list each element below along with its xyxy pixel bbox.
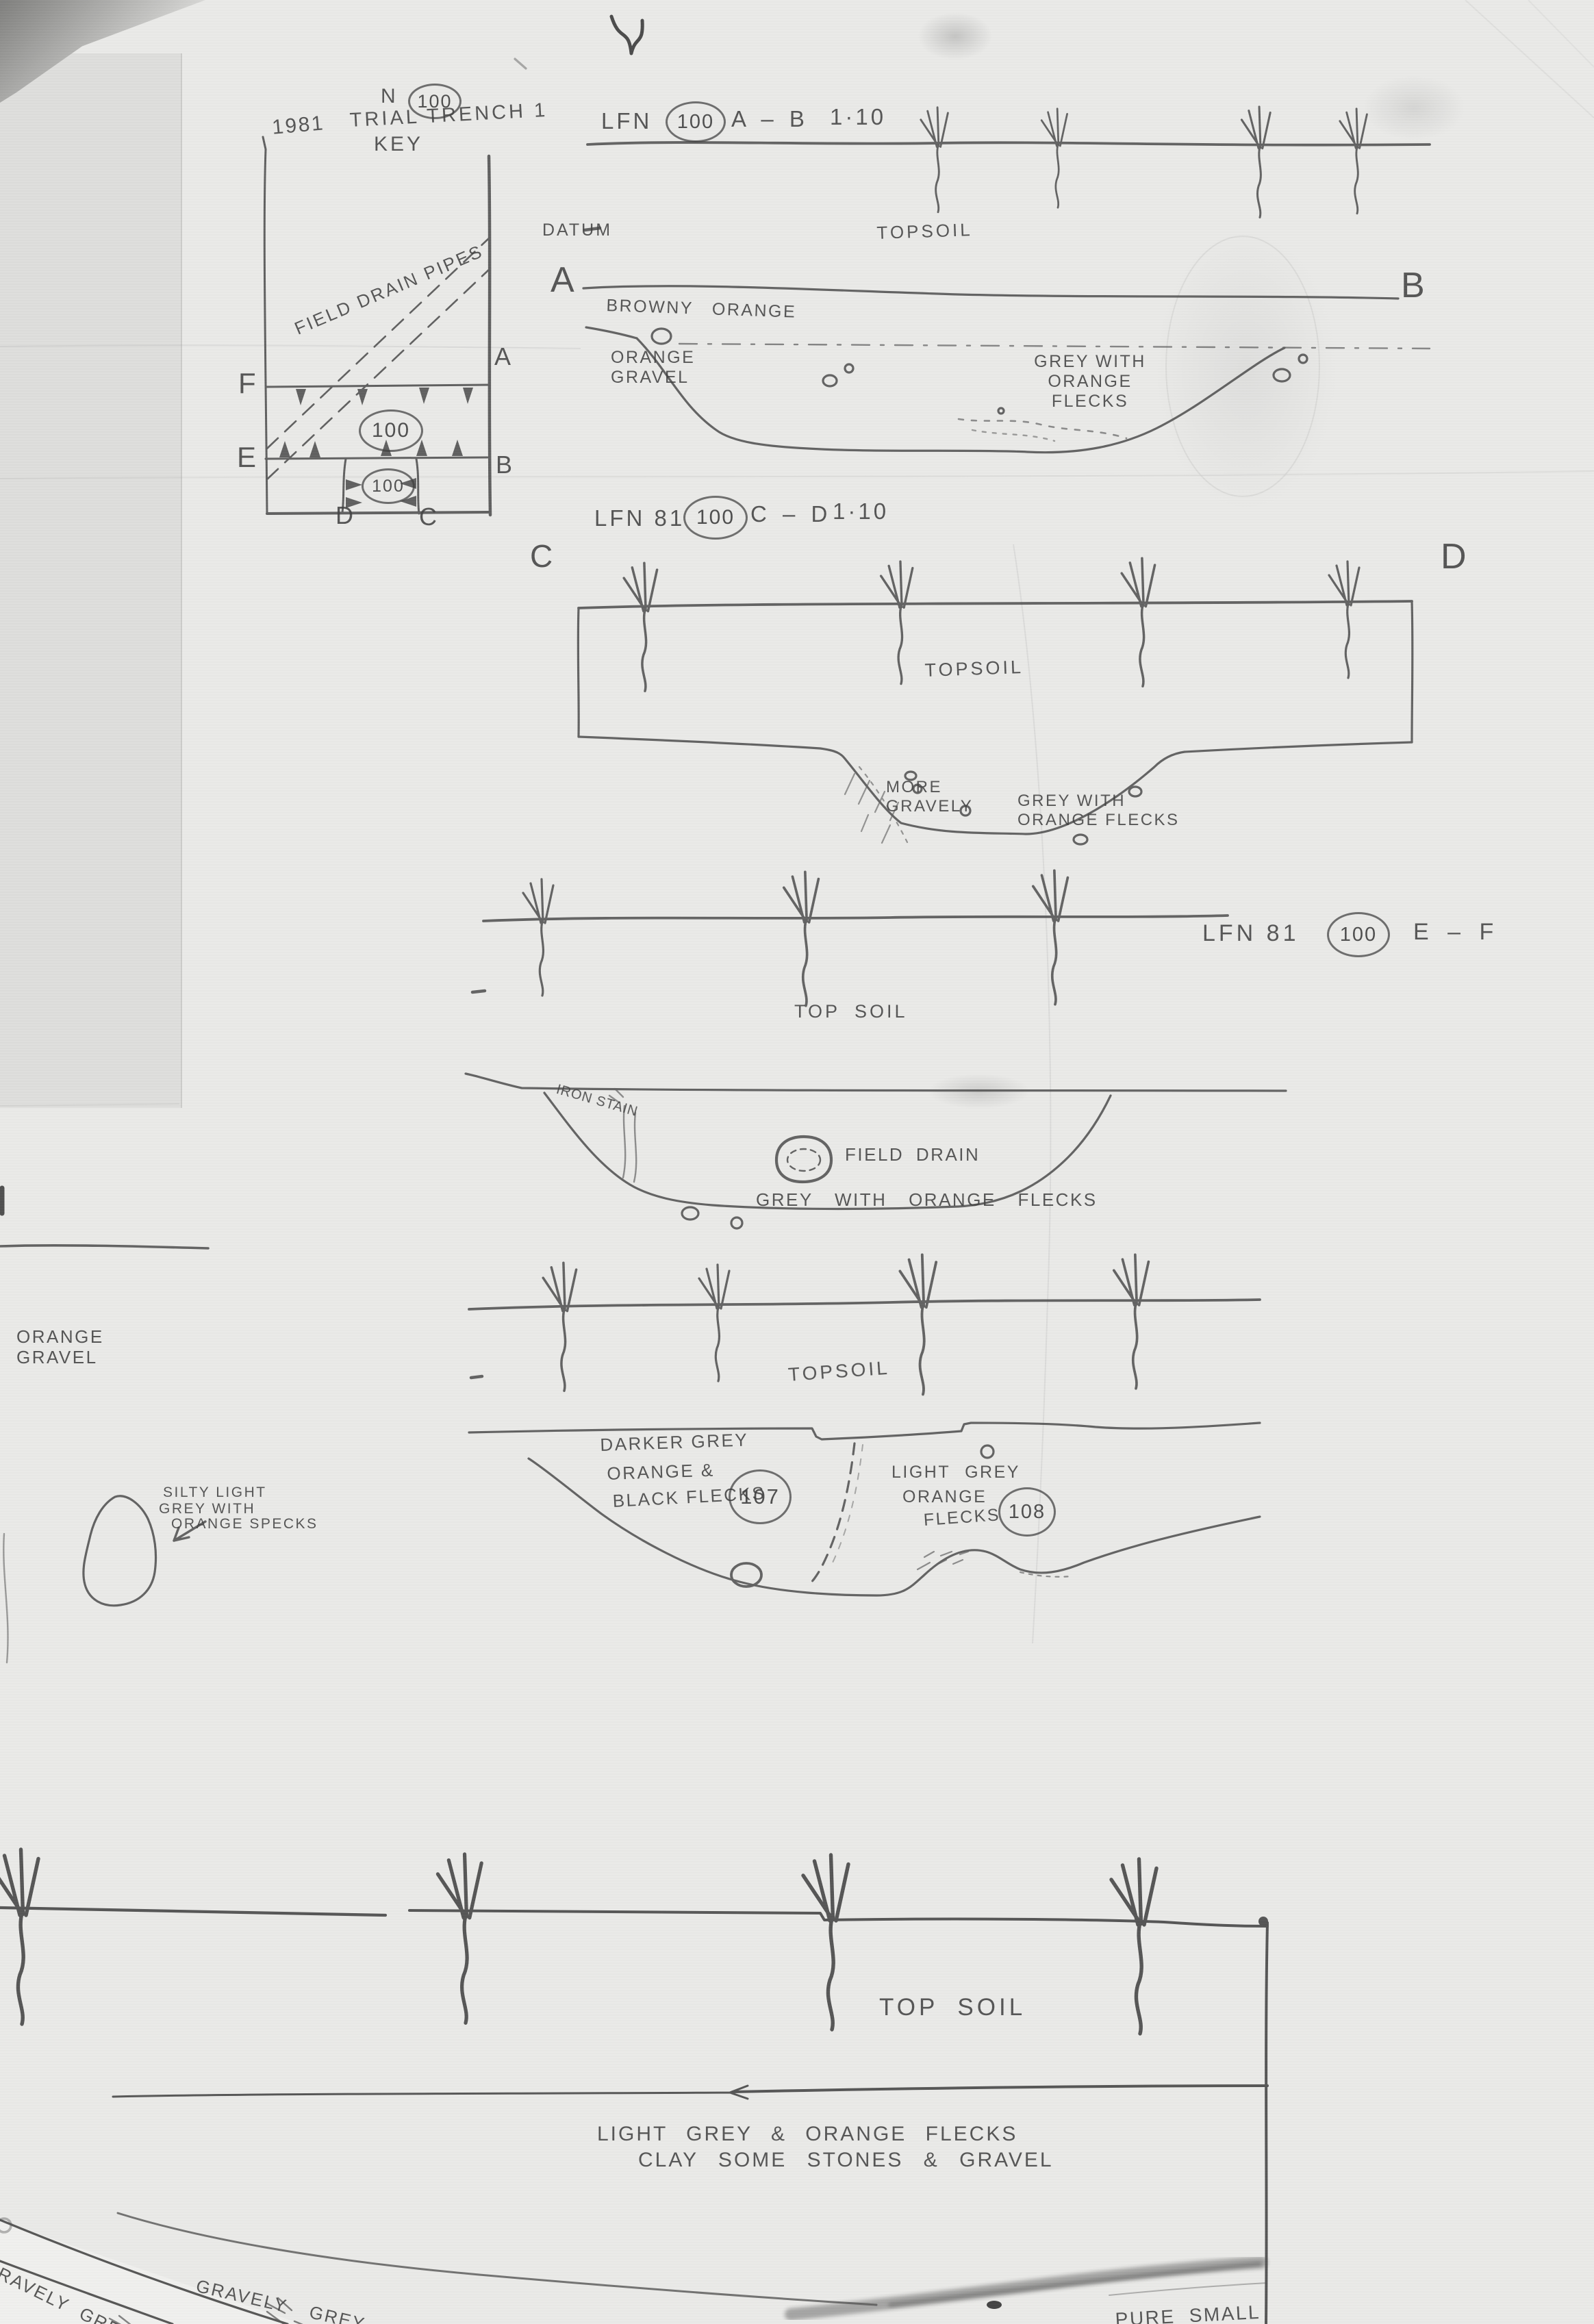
lm-orange-gravel-label: ORANGE GRAVEL xyxy=(16,1327,104,1368)
key-context-upper: 100 xyxy=(359,409,423,452)
key-corner-e: E xyxy=(237,441,258,474)
ab-title-context: 100 xyxy=(666,101,726,142)
cd-grey-flecks-label: GREY WITH ORANGE FLECKS xyxy=(1017,792,1180,829)
ab-title-site: LFN xyxy=(601,108,652,134)
lm-silty-line2: GREY WITH xyxy=(159,1501,255,1517)
ef-grey-flecks-label: GREY WITH ORANGE FLECKS xyxy=(756,1190,1098,1211)
gh-context-108: 108 xyxy=(998,1487,1056,1537)
gh-fill-107-line2: ORANGE & xyxy=(607,1461,715,1485)
scanned-section-drawing: N 100 1981 TRIAL TRENCH 1 KEY FIELD DRAI… xyxy=(0,0,1594,2324)
key-corner-c: C xyxy=(419,503,439,531)
bs-topsoil-label: TOP SOIL xyxy=(879,1994,1026,2021)
key-north-label: N xyxy=(381,85,397,109)
key-subtitle-label: KEY xyxy=(374,133,423,157)
cd-title-scale: 1·10 xyxy=(833,498,889,525)
key-context-lower: 100 xyxy=(362,468,415,504)
ab-grey-flecks-label: GREY WITH ORANGE FLECKS xyxy=(1001,352,1179,411)
ef-title-context: 100 xyxy=(1327,912,1390,957)
key-corner-d: D xyxy=(336,501,355,529)
key-corner-a: A xyxy=(494,342,513,370)
ab-end-right: B xyxy=(1401,266,1426,307)
cd-more-gravely-label: MORE GRAVELY xyxy=(886,778,973,816)
lm-silty-line1: SILTY LIGHT xyxy=(163,1485,267,1501)
pencil-drawing-layer xyxy=(0,0,1594,2324)
cd-title-context: 100 xyxy=(683,496,748,540)
cd-end-right: D xyxy=(1441,537,1468,578)
left-margin-drawing xyxy=(0,1188,208,1663)
ab-orange-gravel-label: ORANGE GRAVEL xyxy=(611,348,695,388)
gh-fill-108-line1: LIGHT GREY xyxy=(891,1463,1020,1482)
gh-fill-108-line2: ORANGE xyxy=(902,1487,987,1507)
cd-title-span: C – D xyxy=(750,501,832,527)
ab-title-scale: 1·10 xyxy=(830,104,886,130)
gh-context-107: 107 xyxy=(729,1469,792,1524)
bottom-section-drawing xyxy=(0,1849,1268,2324)
ab-title-span: A – B xyxy=(731,106,809,132)
section-107-108-drawing xyxy=(469,1254,1260,1595)
ab-topsoil-label: TOPSOIL xyxy=(876,220,973,244)
section-ef-drawing xyxy=(466,870,1286,1228)
cd-title-site: LFN 81 xyxy=(594,505,685,531)
bs-layer-line1: LIGHT GREY & ORANGE FLECKS xyxy=(597,2123,1017,2147)
cd-end-left: C xyxy=(530,538,555,574)
ef-title-span: E – F xyxy=(1413,919,1500,946)
key-corner-f: F xyxy=(238,367,257,400)
bs-layer-line2: CLAY SOME STONES & GRAVEL xyxy=(638,2149,1054,2173)
key-year-label: 1981 xyxy=(271,112,325,140)
ef-title-site: LFN 81 xyxy=(1202,920,1300,947)
ab-end-left: A xyxy=(551,260,576,301)
paper-creases xyxy=(0,0,1594,1643)
section-cd-drawing xyxy=(578,558,1413,844)
key-corner-b: B xyxy=(496,451,514,479)
ef-topsoil-label: TOP SOIL xyxy=(794,1001,908,1022)
ab-datum-label: DATUM xyxy=(542,220,612,240)
lm-silty-line3: ORANGE SPECKS xyxy=(171,1516,318,1532)
cd-topsoil-label: TOPSOIL xyxy=(924,657,1024,681)
ef-field-drain-label: FIELD DRAIN xyxy=(845,1145,980,1165)
